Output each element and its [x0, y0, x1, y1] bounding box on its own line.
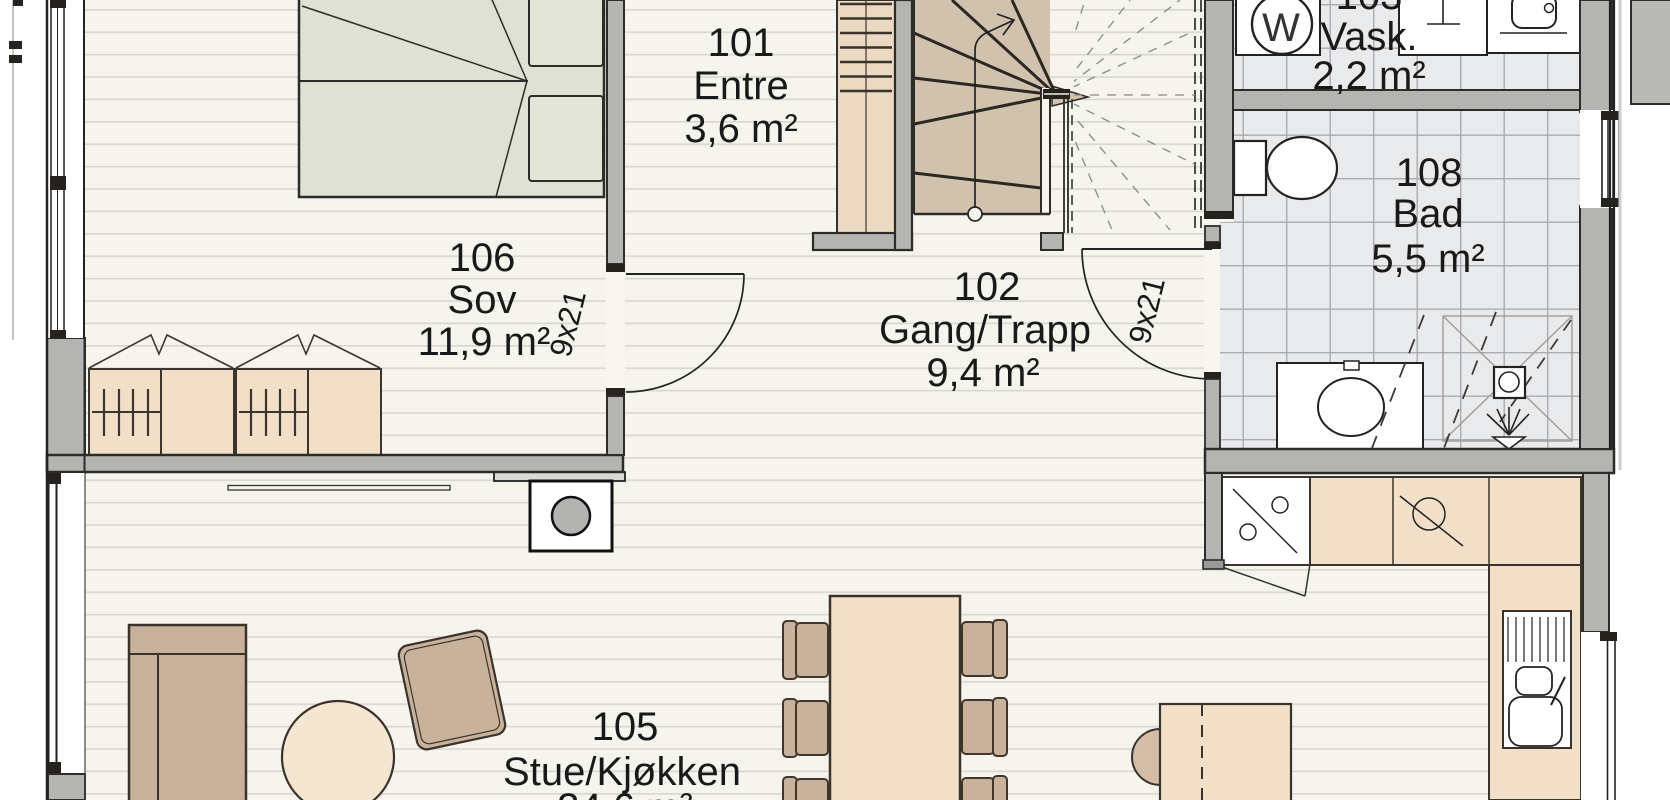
svg-text:108: 108 — [1396, 151, 1463, 195]
svg-text:W: W — [1262, 6, 1300, 50]
svg-text:5,5 m²: 5,5 m² — [1371, 237, 1484, 281]
svg-text:105: 105 — [592, 705, 659, 749]
svg-text:Gang/Trapp: Gang/Trapp — [879, 308, 1091, 352]
svg-text:Entre: Entre — [693, 64, 789, 108]
svg-text:101: 101 — [708, 21, 775, 65]
svg-text:34,6 m²: 34,6 m² — [557, 786, 693, 800]
svg-text:106: 106 — [449, 236, 516, 280]
svg-text:Sov: Sov — [448, 278, 517, 322]
svg-text:102: 102 — [954, 265, 1021, 309]
svg-text:3,6 m²: 3,6 m² — [684, 107, 797, 151]
svg-text:Vask.: Vask. — [1320, 15, 1417, 59]
svg-text:Bad: Bad — [1392, 192, 1463, 236]
svg-text:9,4 m²: 9,4 m² — [926, 351, 1039, 395]
svg-text:2,2 m²: 2,2 m² — [1312, 54, 1425, 98]
svg-text:11,9 m²: 11,9 m² — [418, 320, 551, 364]
